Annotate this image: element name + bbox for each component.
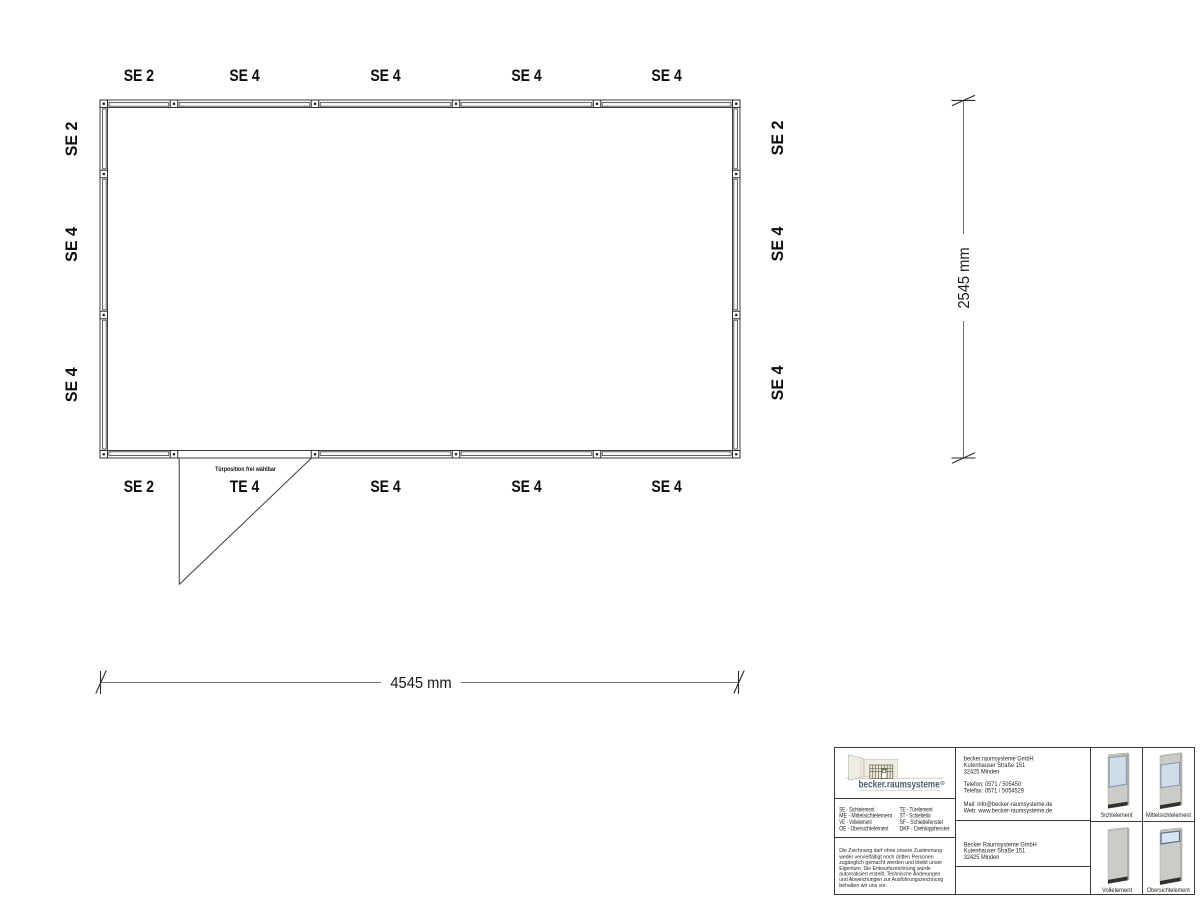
- svg-text:SE 4: SE 4: [370, 478, 401, 496]
- svg-text:2545 mm: 2545 mm: [955, 247, 973, 308]
- svg-text:DKF - Drehkippfenster: DKF - Drehkippfenster: [900, 826, 950, 833]
- svg-text:Telefax: 0571 / 5054529: Telefax: 0571 / 5054529: [964, 788, 1024, 794]
- svg-text:SE 4: SE 4: [769, 227, 787, 262]
- svg-text:Türposition frei wählbar: Türposition frei wählbar: [215, 467, 276, 473]
- svg-text:SE 4: SE 4: [769, 366, 787, 401]
- svg-text:®: ®: [940, 780, 945, 787]
- svg-text:4545 mm: 4545 mm: [390, 674, 451, 692]
- svg-text:Web: www.becker-raumsysteme.de: Web: www.becker-raumsysteme.de: [964, 808, 1052, 814]
- svg-text:32425 Minden: 32425 Minden: [964, 769, 1000, 775]
- svg-text:Mittelsichtelement: Mittelsichtelement: [1146, 812, 1191, 820]
- svg-text:Vollelement: Vollelement: [1102, 886, 1132, 893]
- svg-text:SE 2: SE 2: [124, 478, 154, 496]
- svg-text:Sichtelement: Sichtelement: [1101, 812, 1133, 820]
- svg-text:SE 2: SE 2: [124, 67, 154, 85]
- svg-text:SE 4: SE 4: [63, 227, 81, 262]
- svg-text:32425 Minden: 32425 Minden: [964, 855, 1000, 861]
- svg-text:OE - Obersichtelement: OE - Obersichtelement: [839, 826, 889, 833]
- svg-text:SE 4: SE 4: [511, 478, 542, 496]
- svg-text:becker.raumsysteme GmbH: becker.raumsysteme GmbH: [964, 756, 1034, 762]
- svg-text:Kutenhauser Straße 151: Kutenhauser Straße 151: [964, 848, 1025, 854]
- svg-text:Telefon: 0571 / 505450: Telefon: 0571 / 505450: [964, 782, 1021, 788]
- svg-text:becker.raumsysteme: becker.raumsysteme: [859, 779, 940, 790]
- svg-text:Kutenhauser Straße 151: Kutenhauser Straße 151: [964, 763, 1025, 769]
- svg-text:TE 4: TE 4: [230, 478, 260, 496]
- svg-text:SE 2: SE 2: [769, 121, 787, 156]
- svg-text:SE 4: SE 4: [370, 67, 401, 85]
- svg-text:Obersichtelement: Obersichtelement: [1147, 886, 1190, 894]
- svg-text:SE 4: SE 4: [651, 478, 682, 496]
- svg-text:SE 4: SE 4: [511, 67, 542, 85]
- svg-text:SE 4: SE 4: [651, 67, 682, 85]
- svg-text:SE 4: SE 4: [63, 367, 81, 402]
- svg-text:behalten wir uns vor.: behalten wir uns vor.: [839, 883, 887, 889]
- svg-text:SE 2: SE 2: [63, 122, 81, 157]
- svg-text:SE 4: SE 4: [229, 67, 260, 85]
